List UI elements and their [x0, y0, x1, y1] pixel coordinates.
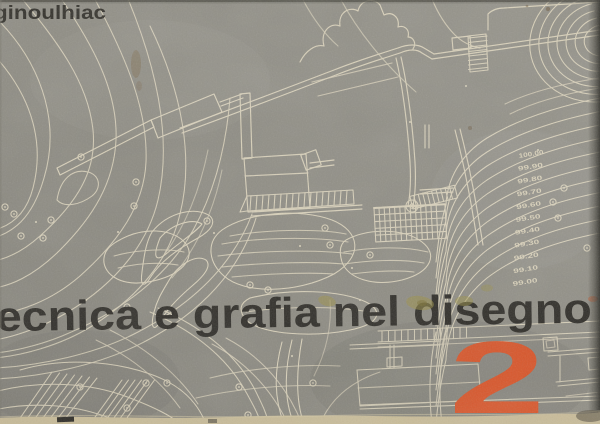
paper-grain-fine — [0, 0, 600, 424]
cover-art: 100.0099.9099.8099.7099.6099.5099.4099.3… — [0, 0, 600, 424]
book-cover: 100.0099.9099.8099.7099.6099.5099.4099.3… — [0, 0, 600, 424]
